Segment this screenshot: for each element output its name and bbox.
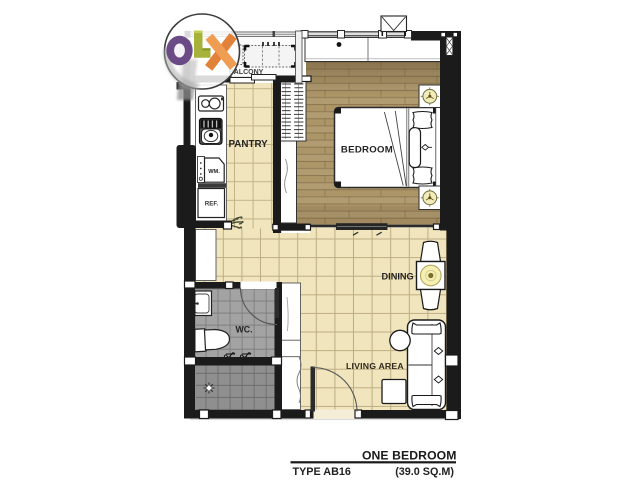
svg-text:DINING: DINING xyxy=(382,272,414,282)
svg-text:PANTRY: PANTRY xyxy=(229,139,269,150)
svg-text:(39.0 SQ.M): (39.0 SQ.M) xyxy=(395,466,454,478)
svg-text:WC.: WC. xyxy=(236,325,253,335)
svg-text:TYPE AB16: TYPE AB16 xyxy=(293,466,351,478)
svg-text:WM.: WM. xyxy=(208,169,220,175)
svg-text:LIVING AREA: LIVING AREA xyxy=(346,361,404,371)
svg-text:REF.: REF. xyxy=(205,201,219,208)
svg-text:ONE BEDROOM: ONE BEDROOM xyxy=(362,448,457,462)
svg-text:BEDROOM: BEDROOM xyxy=(341,144,393,155)
